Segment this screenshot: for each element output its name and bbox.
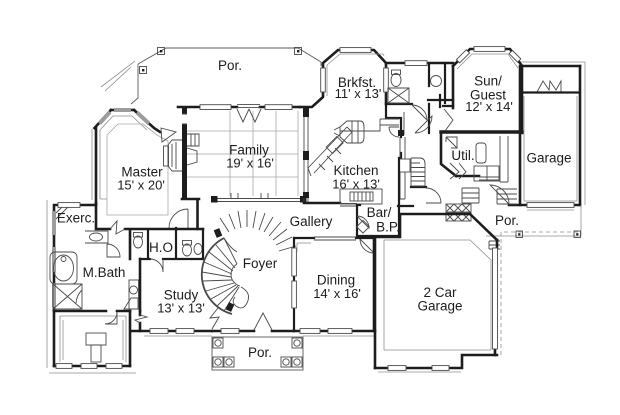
svg-text:H.O: H.O bbox=[149, 240, 173, 255]
svg-text:Por.: Por. bbox=[248, 345, 272, 360]
svg-text:16' x 13': 16' x 13' bbox=[332, 177, 380, 192]
svg-text:B.P.: B.P. bbox=[376, 220, 400, 235]
svg-text:11' x 13': 11' x 13' bbox=[335, 86, 382, 101]
svg-text:Exerc.: Exerc. bbox=[57, 211, 95, 226]
svg-text:12' x 14': 12' x 14' bbox=[465, 99, 513, 114]
svg-text:Garage: Garage bbox=[526, 151, 571, 166]
svg-text:Garage: Garage bbox=[417, 299, 462, 314]
svg-text:13' x 13': 13' x 13' bbox=[157, 301, 205, 316]
svg-text:Sun/: Sun/ bbox=[474, 74, 502, 89]
svg-text:19' x 16': 19' x 16' bbox=[226, 156, 274, 171]
svg-text:Por.: Por. bbox=[218, 58, 242, 73]
svg-text:Foyer: Foyer bbox=[243, 256, 278, 271]
svg-text:Util.: Util. bbox=[451, 148, 474, 163]
svg-text:14' x 16': 14' x 16' bbox=[313, 286, 361, 301]
svg-text:M.Bath: M.Bath bbox=[83, 265, 126, 280]
svg-text:Gallery: Gallery bbox=[290, 214, 333, 229]
svg-text:15' x 20': 15' x 20' bbox=[117, 178, 165, 193]
svg-text:Por.: Por. bbox=[495, 213, 519, 228]
svg-text:Bar/: Bar/ bbox=[367, 205, 392, 220]
